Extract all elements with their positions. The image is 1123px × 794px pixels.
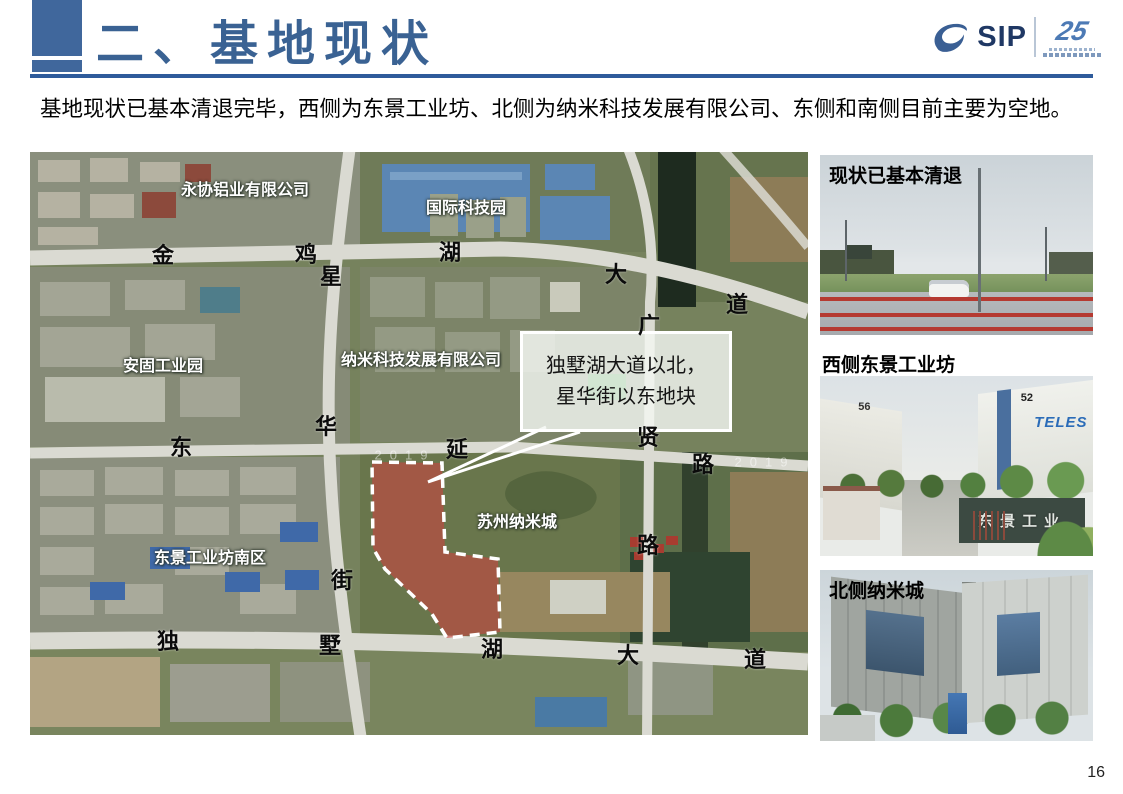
header-accent-bar <box>32 60 82 72</box>
map-road-label: 湖 <box>481 632 503 664</box>
photo3-glass-right <box>997 611 1040 676</box>
map-road-label: 墅 <box>319 628 341 660</box>
map-road-label: 星 <box>320 259 342 291</box>
logo-tagline-text <box>1043 53 1101 57</box>
photo1-guardrail <box>820 297 1093 301</box>
map-road-label: 路 <box>637 528 659 560</box>
map-road-label: 东 <box>170 430 192 462</box>
map-area-label: 东景工业坊南区 <box>154 544 266 568</box>
photo1-light-pole <box>978 168 981 312</box>
sip-logo-text: SIP <box>977 21 1027 54</box>
map-road-label: 湖 <box>439 235 461 267</box>
slide-root: 二、基地现状 SIP 25 基地现状已基本清退完毕，西侧为东景工业坊、北侧为纳米… <box>0 0 1123 794</box>
photo-caption-cleared: 现状已基本清退 <box>829 161 962 188</box>
map-road-label: 道 <box>744 642 766 674</box>
map-road-label: 广 <box>638 308 660 340</box>
map-road-label: 金 <box>152 238 174 270</box>
photo1-van <box>929 280 969 297</box>
logo-tagline-small <box>1049 48 1095 51</box>
photo1-guardrail <box>820 327 1093 331</box>
photo-nano-city: 北侧纳米城 <box>820 570 1093 741</box>
map-road-label: 路 <box>692 447 714 479</box>
photo1-building-left2 <box>845 245 872 259</box>
site-map: 独墅湖大道以北， 星华街以东地块 永协铝业有限公司国际科技园安固工业园纳米科技发… <box>30 152 808 735</box>
logo-anniversary-number: 25 <box>1054 18 1091 45</box>
sip-logo: SIP 25 <box>928 14 1101 60</box>
photo2-bushes <box>1033 516 1093 556</box>
photo2-gate <box>973 511 1006 540</box>
map-road-label: 鸡 <box>295 237 317 269</box>
photo-caption-nanocity: 北侧纳米城 <box>829 576 924 603</box>
photo-site-cleared: 现状已基本清退 <box>820 155 1093 335</box>
logo-anniversary: 25 <box>1043 18 1101 57</box>
photo3-blue-sign <box>948 693 967 734</box>
photo3-road <box>820 715 875 741</box>
map-watermark: 2019 <box>735 455 796 470</box>
photo-caption-dongjing: 西侧东景工业坊 <box>822 350 955 377</box>
map-area-label: 纳米科技发展有限公司 <box>341 346 501 370</box>
map-road-label: 大 <box>605 257 627 289</box>
map-road-label: 延 <box>446 432 468 464</box>
photo-dongjing-park: 56 52 TELES 东景工业 <box>820 376 1093 556</box>
intro-text: 基地现状已基本清退完毕，西侧为东景工业坊、北侧为纳米科技发展有限公司、东侧和南侧… <box>40 96 1090 123</box>
map-road-label: 贤 <box>637 420 659 452</box>
map-road-label: 独 <box>157 624 179 656</box>
logo-divider <box>1034 17 1036 57</box>
photo3-glass-left <box>866 610 923 677</box>
photo1-building-right <box>1049 252 1093 275</box>
map-watermark: 2019 <box>375 448 436 463</box>
photo2-building-number-52: 52 <box>1021 392 1033 404</box>
photo2-teles-sign: TELES <box>1034 414 1087 431</box>
header-accent-square <box>32 0 82 56</box>
callout-line-1: 独墅湖大道以北， <box>546 351 706 382</box>
map-road-label: 道 <box>726 287 748 319</box>
map-area-label: 苏州纳米城 <box>477 508 557 532</box>
photo1-guardrail <box>820 313 1093 317</box>
sip-swoosh-icon <box>928 16 970 58</box>
photo2-guard-booth <box>823 486 880 540</box>
header-rule <box>30 74 1093 78</box>
photo2-building-number-56: 56 <box>858 401 870 413</box>
photo1-light-pole <box>845 220 847 281</box>
callout-line-2: 星华街以东地块 <box>556 382 696 413</box>
photo1-light-pole <box>1045 227 1047 281</box>
map-road-label: 大 <box>617 638 639 670</box>
map-overlays: 独墅湖大道以北， 星华街以东地块 永协铝业有限公司国际科技园安固工业园纳米科技发… <box>30 152 808 735</box>
page-number: 16 <box>1087 764 1105 782</box>
map-area-label: 安固工业园 <box>123 352 203 376</box>
map-road-label: 街 <box>331 563 353 595</box>
page-title: 二、基地现状 <box>96 4 438 74</box>
map-area-label: 国际科技园 <box>426 194 506 218</box>
map-road-label: 华 <box>315 409 337 441</box>
map-area-label: 永协铝业有限公司 <box>181 176 309 200</box>
callout-box: 独墅湖大道以北， 星华街以东地块 <box>520 331 732 432</box>
